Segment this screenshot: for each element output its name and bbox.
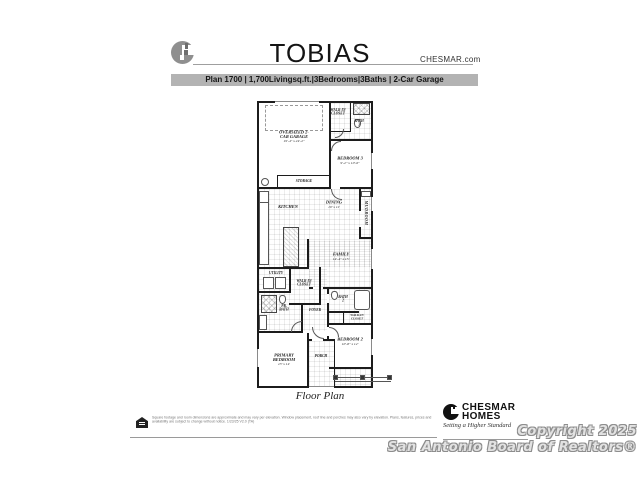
wall xyxy=(329,139,373,141)
fence-post xyxy=(333,375,338,380)
wall xyxy=(257,267,309,269)
wall xyxy=(257,187,373,189)
wall xyxy=(307,333,309,388)
door-arc xyxy=(329,327,339,337)
shower-icon xyxy=(261,295,277,313)
room-label-primary-closet: WALK-IN CLOSET xyxy=(296,279,312,286)
wall xyxy=(319,267,321,305)
wall xyxy=(289,267,291,293)
mls-watermark: Copyright 2025 San Antonio Board of Real… xyxy=(388,424,637,456)
door-arc xyxy=(312,327,324,339)
copyright-line1: Copyright 2025 xyxy=(388,424,637,440)
wall xyxy=(343,311,344,323)
wall xyxy=(329,323,373,325)
door-opening xyxy=(327,294,329,303)
room-label-utility: UTILITY xyxy=(266,271,286,275)
water-heater-icon xyxy=(261,178,269,186)
tub-icon xyxy=(354,290,370,310)
room-label-dining: DINING 10' x 11' xyxy=(318,200,351,209)
porch-opening xyxy=(309,386,334,388)
wall xyxy=(359,237,373,239)
room-label-garage: OVERSIZED 2-CAR GARAGE 19'-4" x 24'-2" xyxy=(277,130,311,144)
logo-chimney xyxy=(185,43,188,49)
room-label-storage: STORAGE xyxy=(291,179,318,183)
wall xyxy=(259,291,291,293)
door-arc xyxy=(331,141,341,151)
brand-name: CHESMAR HOMES xyxy=(462,403,515,421)
fridge-icon xyxy=(259,191,269,203)
room-label-walkin-closet-2: WALK-IN CLOSET xyxy=(349,314,364,320)
floor-plan: OVERSIZED 2-CAR GARAGE 19'-4" x 24'-2" S… xyxy=(257,101,373,388)
wall xyxy=(289,303,321,305)
logo-window xyxy=(180,55,184,60)
header-rule xyxy=(193,64,473,65)
garage-door xyxy=(275,101,319,103)
vanity-icon xyxy=(259,315,267,330)
room-label-mudroom: MUDROOM xyxy=(364,201,369,226)
copyright-line2: San Antonio Board of Realtors® xyxy=(388,440,637,456)
wall xyxy=(307,239,309,269)
shower-icon xyxy=(353,103,370,115)
floor-plan-caption: Floor Plan xyxy=(270,390,370,402)
room-label-bath-2: BATH 2 xyxy=(338,295,349,302)
dryer-icon xyxy=(275,277,286,289)
door-opening xyxy=(313,287,323,289)
wall xyxy=(277,175,330,176)
chesmar-c-icon xyxy=(443,404,460,421)
window xyxy=(371,153,373,169)
room-label-primary-bedroom: PRIMARY BEDROOM 13' x 14' xyxy=(271,353,296,367)
floor-porch xyxy=(309,341,334,386)
room-label-kitchen: KITCHEN xyxy=(269,205,308,209)
plan-spec-bar: Plan 1700 | 1,700Livingsq.ft.|3Bedrooms|… xyxy=(171,74,478,86)
room-label-walkin-closet-3: WALK-IN CLOSET xyxy=(330,108,346,115)
fence-post xyxy=(360,375,365,380)
window xyxy=(257,349,259,367)
window xyxy=(371,197,373,211)
garage-door-tracks xyxy=(265,105,323,131)
door-opening xyxy=(312,339,323,341)
room-label-bedroom-2: BEDROOM 2 10'-8" x 12' xyxy=(331,337,370,346)
listing-image: TOBIAS CHESMAR.com Plan 1700 | 1,700Livi… xyxy=(0,0,640,480)
washer-icon xyxy=(263,277,274,289)
website-url: CHESMAR.com xyxy=(420,55,480,64)
room-label-primary-bath: PR. BATH xyxy=(279,304,290,311)
mudroom-bench xyxy=(361,191,371,197)
patio-fence xyxy=(335,381,391,382)
kitchen-island xyxy=(283,227,299,267)
room-label-bath-3: BATH 3 xyxy=(354,119,364,126)
room-label-porch: PORCH xyxy=(311,354,331,358)
logo-house xyxy=(184,50,188,55)
chesmar-c-logo xyxy=(171,41,195,68)
room-label-family: FAMILY 14'-4" x 15' xyxy=(322,252,361,261)
room-label-foyer: FOYER xyxy=(304,308,327,312)
wall xyxy=(277,175,278,188)
room-label-bedroom-3: BEDROOM 3 9'-2" x 10'-6" xyxy=(331,156,370,165)
window xyxy=(371,249,373,269)
wall xyxy=(350,103,351,131)
window xyxy=(371,339,373,355)
toilet-icon xyxy=(279,295,286,304)
fence-post xyxy=(387,375,392,380)
wall xyxy=(329,367,373,369)
equal-housing-icon xyxy=(136,417,148,428)
